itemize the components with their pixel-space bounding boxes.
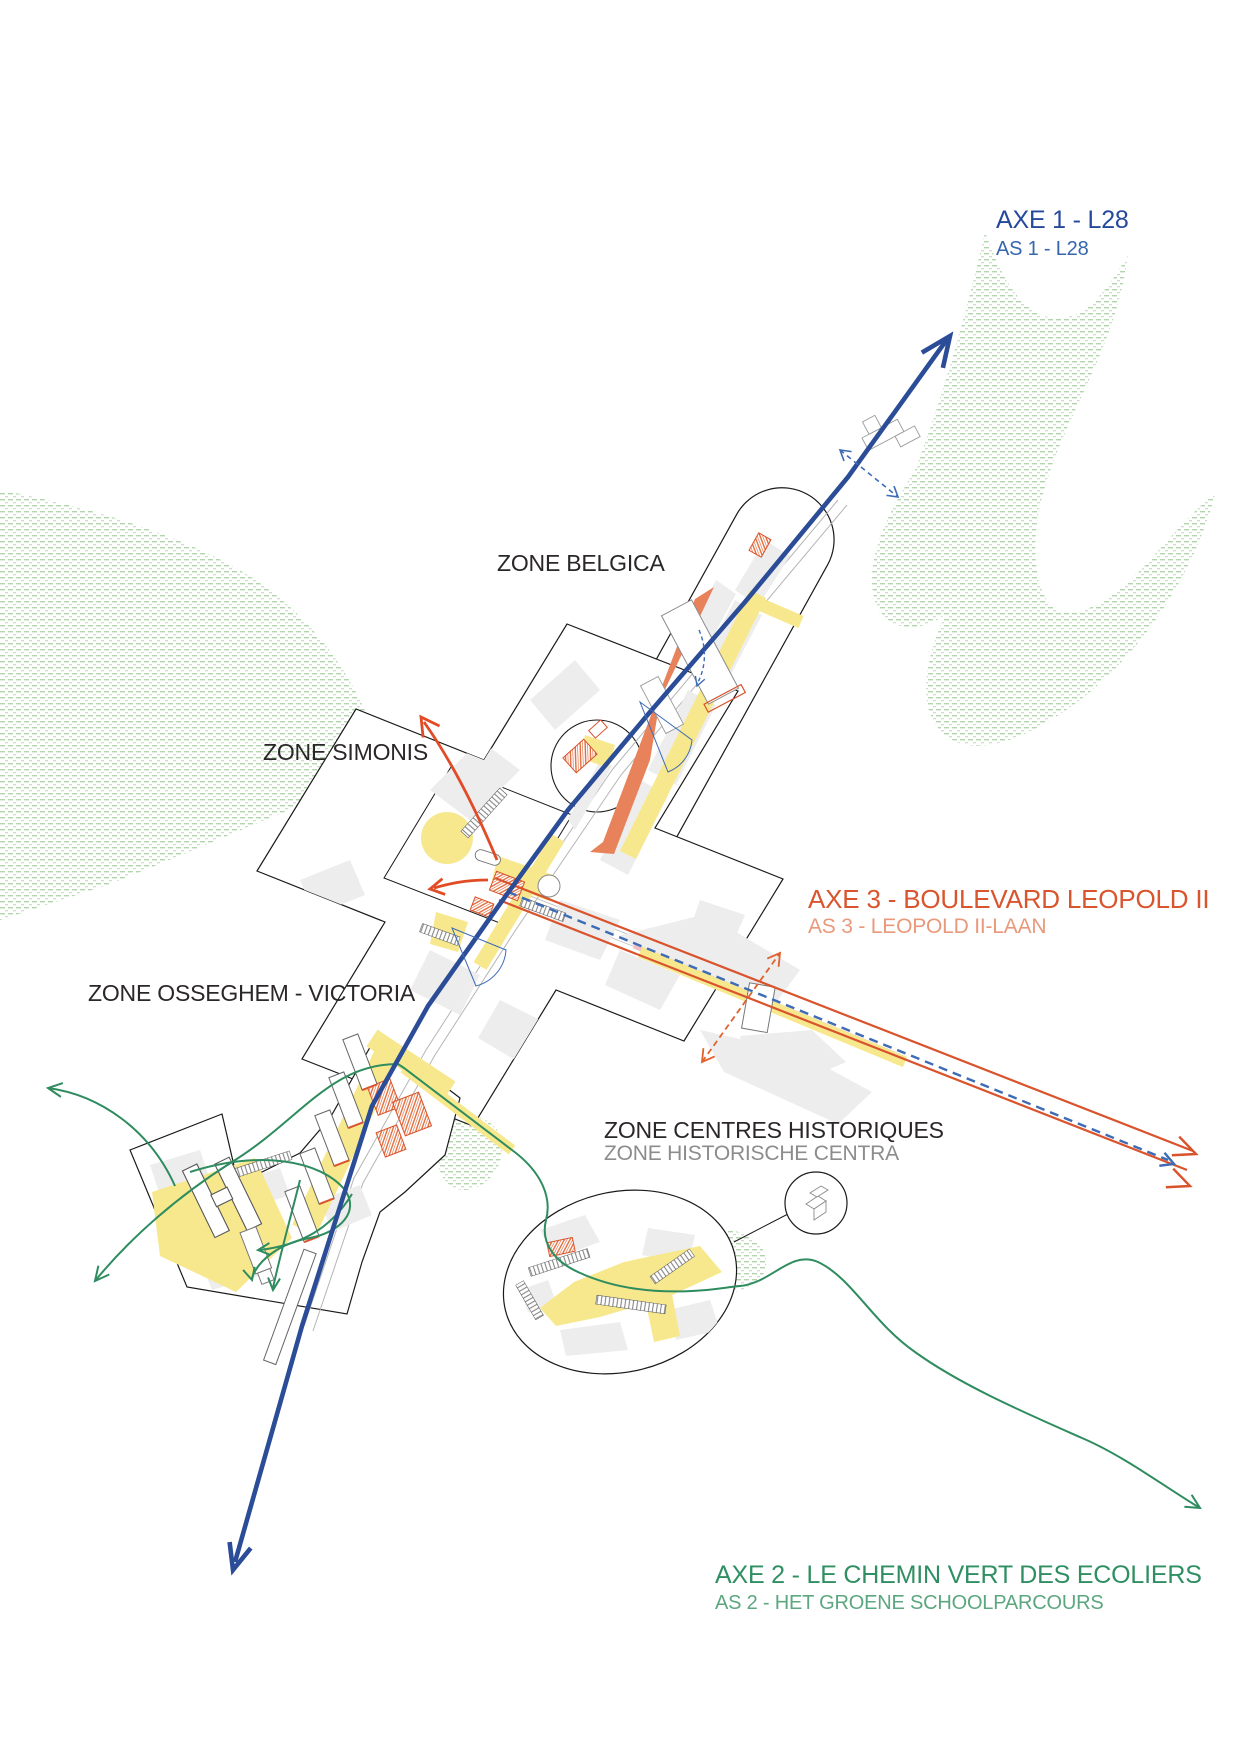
label-zone-belgica: ZONE BELGICA [497,551,665,575]
hatch-area-top-right [872,232,1215,746]
label-axe1-fr: AXE 1 - L28 [996,207,1129,233]
callout-connector [734,1214,788,1242]
masterplan-page: AXE 1 - L28 AS 1 - L28 ZONE BELGICA ZONE… [0,0,1241,1754]
label-axe3-nl: AS 3 - LEOPOLD II-LAAN [808,916,1046,938]
label-zone-centres-fr: ZONE CENTRES HISTORIQUES [604,1118,944,1142]
label-zone-centres-nl: ZONE HISTORISCHE CENTRA [604,1143,899,1165]
plan-canvas [0,0,1241,1754]
label-zone-simonis: ZONE SIMONIS [263,740,428,764]
label-axe2-nl: AS 2 - HET GROENE SCHOOLPARCOURS [715,1593,1104,1614]
label-axe1-nl: AS 1 - L28 [996,239,1089,260]
label-axe3-fr: AXE 3 - BOULEVARD LEOPOLD II [808,886,1209,913]
label-axe2-fr: AXE 2 - LE CHEMIN VERT DES ECOLIERS [715,1562,1202,1588]
label-zone-osseghem: ZONE OSSEGHEM - VICTORIA [88,981,415,1005]
